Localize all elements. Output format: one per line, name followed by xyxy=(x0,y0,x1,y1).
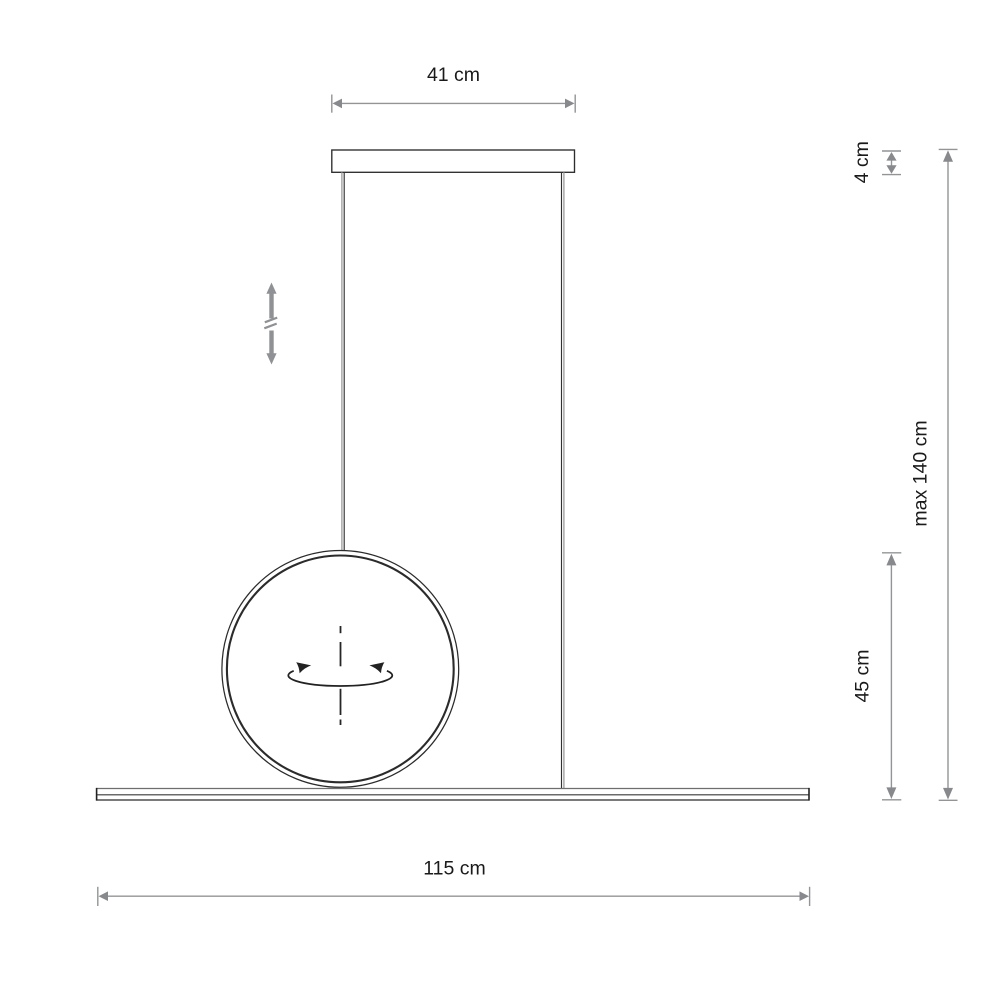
svg-text:45 cm: 45 cm xyxy=(852,649,874,702)
svg-text:4 cm: 4 cm xyxy=(851,141,873,183)
svg-text:41 cm: 41 cm xyxy=(427,64,480,86)
svg-text:max 140 cm: max 140 cm xyxy=(910,420,932,526)
svg-text:115 cm: 115 cm xyxy=(423,858,486,880)
